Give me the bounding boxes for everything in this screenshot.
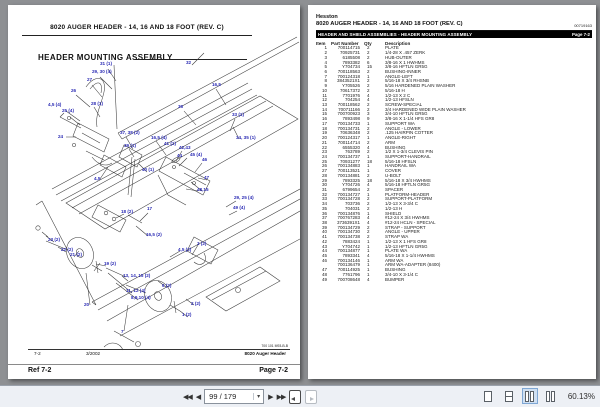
description-cell: BUMPER [385, 278, 404, 283]
diagram-callout: 11, 12 (4) [126, 288, 145, 293]
diagram-callout: 42,43 [179, 145, 191, 150]
diagram-callout: 23 (2) [48, 237, 60, 242]
continuous-view-button[interactable] [501, 388, 517, 404]
previous-page-icon: ◀ [196, 393, 200, 401]
diagram-callout: 36 [178, 104, 183, 109]
diagram-callout: 29, 25 (4) [234, 195, 254, 200]
chevron-down-icon[interactable]: ▾ [253, 393, 263, 400]
doc-number: 00719163 [574, 23, 592, 28]
section-bar-text: HEADER AND SHIELD ASSEMBLIES - HEADER MO… [318, 32, 472, 37]
refbar-page: Page 7-2 [259, 367, 288, 374]
diagram-callout: 16,5 (4) [151, 135, 167, 140]
document-page-right: Hesston 8020 AUGER HEADER - 14, 16 AND 1… [308, 5, 596, 379]
item-cell: 49 [316, 278, 327, 283]
first-page-button[interactable]: ◀◀ [183, 390, 192, 404]
footer-ref: 7-2 [34, 351, 41, 356]
diagram-callouts: 31 (1)29, 30 (4)27264,5 (4)28 (1)25 (4)2… [8, 5, 300, 379]
diagram-callout: 47 [204, 175, 209, 180]
first-page-icon: ◀◀ [183, 393, 192, 401]
two-page-icon [525, 391, 534, 402]
parts-table: Item Part Number Qty Description 1700114… [316, 41, 594, 282]
last-page-icon: ▶▶ [277, 393, 286, 401]
last-page-button[interactable]: ▶▶ [277, 390, 286, 404]
parts-table-body: 17001147152PLATE27092573121/4-28 X .457 … [316, 46, 594, 282]
page-indicator: 99 / 179 [205, 392, 253, 401]
diagram-callout: 6 (2) [162, 283, 171, 288]
next-view-button[interactable] [305, 390, 317, 404]
document-page-left: 8020 AUGER HEADER - 14, 16 AND 18 FOOT (… [8, 5, 300, 379]
diagram-callout: 8,9,10 (4) [131, 295, 151, 300]
two-page-view-button[interactable] [522, 388, 538, 404]
diagram-callout: 29, 30 (4) [92, 69, 112, 74]
diagram-callout: 21 (2) [70, 252, 82, 257]
diagram-callout: 16,5 [212, 82, 221, 87]
next-page-button[interactable]: ▶ [268, 390, 272, 404]
view-mode-cluster: 60.13% [480, 388, 595, 404]
diagram-callout: 4,5 (2) [178, 247, 191, 252]
section-bar-page: Page 7-2 [572, 32, 590, 37]
diagram-callout: 32 [186, 60, 191, 65]
page-number-input[interactable]: 99 / 179 ▾ [204, 389, 264, 404]
page-nav-cluster: ◀◀ ◀ 99 / 179 ▾ ▶ ▶▶ [183, 389, 317, 404]
single-page-icon [484, 391, 492, 402]
table-row: 497007086484BUMPER [316, 278, 594, 283]
brand-name: Hesston [316, 14, 338, 20]
diagram-callout: 37, 38 (2) [120, 130, 140, 135]
previous-view-button[interactable] [289, 390, 301, 404]
diagram-callout: 40 (1) [142, 167, 154, 172]
refbar-divider [8, 364, 300, 365]
footer-date: 3/2002 [86, 351, 100, 356]
refbar: Ref 7-2 Page 7-2 [28, 367, 288, 374]
diagram-callout: 31 (1) [100, 61, 112, 66]
diagram-callout: 19 (2) [104, 261, 116, 266]
section-bar: HEADER AND SHIELD ASSEMBLIES - HEADER MO… [316, 31, 592, 38]
diagram-callout: 17 [147, 206, 152, 211]
drawing-code: 700 101 M93-B-B [261, 344, 288, 348]
assembly-diagram: 31 (1)29, 30 (4)27264,5 (4)28 (1)25 (4)2… [8, 5, 300, 379]
diagram-callout: 27 [87, 77, 92, 82]
diagram-callout: 16,5 (2) [146, 232, 162, 237]
diagram-callout: 4,5 [94, 176, 100, 181]
previous-page-button[interactable]: ◀ [196, 390, 200, 404]
diagram-callout: 25 (4) [62, 108, 74, 113]
part-number-cell: 700708648 [327, 278, 360, 283]
diagram-callout: 13, 14, 15 (2) [123, 273, 150, 278]
two-page-continuous-view-button[interactable] [543, 388, 559, 404]
continuous-page-icon [505, 391, 513, 402]
next-page-icon: ▶ [268, 393, 272, 401]
diagram-callout: 28 (1) [91, 101, 103, 106]
diagram-callout: 1 (2) [182, 312, 191, 317]
refbar-ref: Ref 7-2 [28, 367, 51, 374]
diagram-callout: 2 (2) [191, 301, 200, 306]
diagram-callout: 41 (1) [164, 141, 176, 146]
diagram-callout: 24 [58, 134, 63, 139]
right-page-title: 8020 AUGER HEADER - 14, 16 AND 18 FOOT (… [316, 21, 463, 27]
diagram-callout: 46 [202, 157, 207, 162]
diagram-callout: 48,15 [197, 187, 209, 192]
diagram-callout: 20 [84, 302, 89, 307]
diagram-callout: 26 [71, 88, 76, 93]
diagram-callout: 18 (2) [121, 209, 133, 214]
viewer-toolbar: ◀◀ ◀ 99 / 179 ▾ ▶ ▶▶ 60.13% [0, 385, 600, 407]
zoom-level[interactable]: 60.13% [568, 392, 595, 401]
footer-rule [28, 349, 290, 350]
right-page-title-row: 8020 AUGER HEADER - 14, 16 AND 18 FOOT (… [316, 21, 592, 31]
diagram-callout: 44 [177, 153, 182, 158]
two-page-continuous-icon [546, 391, 555, 402]
diagram-callout: 33 (1) [232, 112, 244, 117]
single-page-view-button[interactable] [480, 388, 496, 404]
diagram-callout: 45 (4) [190, 152, 202, 157]
diagram-callout: 49 (4) [233, 205, 245, 210]
qty-cell: 4 [367, 278, 379, 283]
diagram-callout: 4,5 (4) [48, 102, 61, 107]
diagram-callout: 3 (2) [197, 241, 206, 246]
diagram-callout: 7 [121, 329, 124, 334]
diagram-callout: 39 (1) [124, 143, 136, 148]
diagram-callout: 34, 35 (1) [236, 135, 256, 140]
footer-doc-title: 8020 Auger Header [245, 351, 286, 356]
